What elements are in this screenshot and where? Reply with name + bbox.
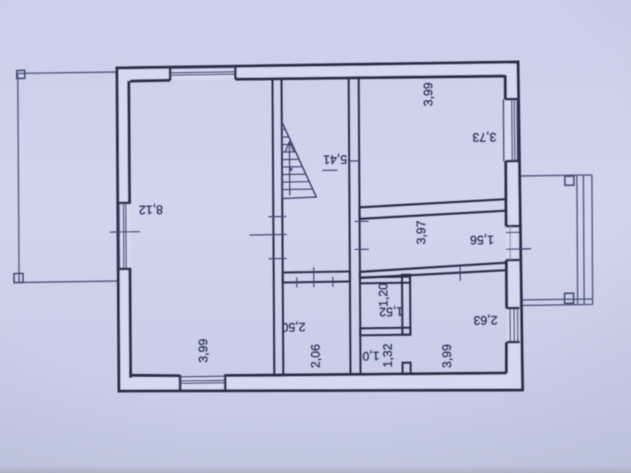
svg-text:3,99: 3,99 — [440, 344, 454, 368]
svg-text:1,32: 1,32 — [381, 343, 395, 367]
svg-text:2,50: 2,50 — [281, 320, 305, 334]
svg-text:3,73: 3,73 — [472, 130, 496, 144]
svg-text:2,63: 2,63 — [473, 313, 497, 327]
svg-text:1,20: 1,20 — [376, 283, 390, 307]
svg-text:2,06: 2,06 — [309, 344, 323, 368]
svg-text:1,0: 1,0 — [362, 349, 379, 363]
svg-text:8,12: 8,12 — [139, 203, 163, 217]
svg-text:3,99: 3,99 — [421, 82, 435, 106]
svg-text:5,41: 5,41 — [323, 152, 347, 166]
svg-text:1,52: 1,52 — [379, 304, 403, 318]
svg-text:3,99: 3,99 — [196, 339, 210, 363]
svg-text:3,97: 3,97 — [414, 220, 428, 244]
svg-text:1,56: 1,56 — [470, 233, 494, 247]
